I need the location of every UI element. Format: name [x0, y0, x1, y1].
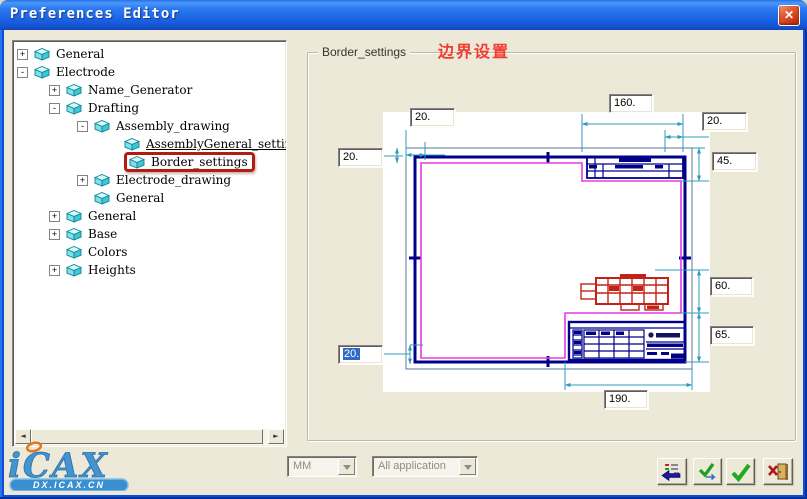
tree-item-label: Border_settings	[151, 155, 248, 169]
icax-watermark-logo: iCAX DX.ICAX.CN	[4, 440, 144, 494]
expander-icon[interactable]: -	[17, 67, 28, 78]
box-node-icon	[94, 173, 110, 187]
tree-item-assembly-drawing[interactable]: - Assembly_drawing	[13, 117, 286, 135]
dim-input-title-block-width[interactable]: 190.	[604, 390, 648, 409]
dim-input-parts-list-offset[interactable]: 60.	[710, 277, 753, 296]
check-with-arrows-icon	[697, 462, 719, 482]
border-preview-drawing	[383, 112, 710, 392]
tree-item-label: Electrode	[56, 65, 115, 79]
tree-item-colors[interactable]: Colors	[13, 243, 286, 261]
box-node-icon	[124, 137, 140, 151]
selected-value: 20.	[343, 348, 360, 360]
expander-icon[interactable]: +	[49, 85, 60, 96]
tree-item-general-electrode[interactable]: + General	[13, 207, 286, 225]
bottom-divider	[4, 491, 803, 495]
scope-combobox[interactable]: All application	[372, 456, 478, 477]
dim-input-left-margin[interactable]: 20.	[338, 148, 383, 167]
units-combobox[interactable]: MM	[287, 456, 357, 477]
tree-item-label: Heights	[88, 263, 136, 277]
green-check-icon	[730, 462, 752, 482]
chevron-down-icon[interactable]	[459, 458, 476, 475]
units-combobox-value: MM	[293, 460, 311, 472]
tree-item-general-drafting[interactable]: General	[13, 189, 286, 207]
red-parts-table	[581, 274, 668, 310]
box-node-icon	[66, 83, 82, 97]
window-title: Preferences Editor	[10, 6, 180, 22]
tree-item-electrode-drawing[interactable]: + Electrode_drawing	[13, 171, 286, 189]
tree-item-label: Name_Generator	[88, 83, 192, 97]
door-with-x-icon	[767, 462, 789, 482]
dim-input-top-table-height[interactable]: 45.	[712, 152, 757, 171]
ok-button[interactable]	[726, 458, 755, 485]
box-node-icon	[66, 227, 82, 241]
scroll-right-button[interactable]: ►	[268, 429, 284, 444]
dim-input-top-right-margin[interactable]: 20.	[702, 112, 747, 131]
tree-item-name-generator[interactable]: + Name_Generator	[13, 81, 286, 99]
box-node-icon	[34, 65, 50, 79]
dim-input-top-left-margin[interactable]: 20.	[410, 108, 455, 127]
box-node-icon	[66, 101, 82, 115]
expander-icon[interactable]: +	[49, 229, 60, 240]
box-node-icon	[94, 119, 110, 133]
scope-combobox-value: All application	[378, 460, 446, 472]
expander-icon[interactable]: +	[49, 211, 60, 222]
tree-item-label: Electrode_drawing	[116, 173, 231, 187]
tree-item-assemblygeneral-settings[interactable]: AssemblyGeneral_settings	[13, 135, 286, 153]
reset-defaults-button[interactable]	[657, 458, 687, 485]
close-button[interactable]: ✕	[778, 5, 800, 26]
tree-item-general-root[interactable]: + General	[13, 45, 286, 63]
tree-item-label: Drafting	[88, 101, 139, 115]
expander-icon[interactable]: -	[49, 103, 60, 114]
border-preview-canvas	[383, 112, 710, 392]
expander-icon[interactable]: +	[49, 265, 60, 276]
expander-icon[interactable]: +	[77, 175, 88, 186]
box-node-icon	[34, 47, 50, 61]
margin-line	[421, 163, 681, 358]
red-annotation-text: 边界设置	[438, 38, 510, 62]
tree-item-label: AssemblyGeneral_settings	[146, 137, 287, 151]
exit-button[interactable]	[763, 458, 793, 485]
box-node-icon	[129, 155, 145, 169]
preferences-editor-window: Preferences Editor ✕ + General - Electro…	[0, 0, 807, 499]
preferences-tree[interactable]: + General - Electrode + Name_Generator -	[12, 40, 287, 447]
apply-button[interactable]	[693, 458, 722, 485]
title-block	[569, 322, 685, 360]
logo-banner-text: DX.ICAX.CN	[33, 480, 105, 490]
dim-input-bottom-margin[interactable]: 20.	[338, 345, 383, 364]
dialog-client-area: + General - Electrode + Name_Generator -	[4, 30, 803, 495]
tree-item-label: General	[116, 191, 164, 205]
groupbox-label: Border_settings	[318, 45, 410, 59]
expander-icon[interactable]: -	[77, 121, 88, 132]
dim-input-top-table-width[interactable]: 160.	[609, 94, 653, 113]
tree-item-label: Colors	[88, 245, 127, 259]
tree-item-electrode[interactable]: - Electrode	[13, 63, 286, 81]
chevron-down-icon[interactable]	[338, 458, 355, 475]
top-right-table	[587, 157, 683, 178]
expander-icon[interactable]: +	[17, 49, 28, 60]
red-highlight-box: Border_settings	[124, 152, 255, 172]
tree-item-label: General	[88, 209, 136, 223]
list-with-back-arrow-icon	[661, 462, 683, 482]
tree-item-base[interactable]: + Base	[13, 225, 286, 243]
box-node-icon	[94, 191, 110, 205]
tree-item-label: General	[56, 47, 104, 61]
box-node-icon	[66, 209, 82, 223]
tree-item-border-settings[interactable]: Border_settings	[13, 153, 286, 171]
box-node-icon	[66, 245, 82, 259]
tree-item-label: Assembly_drawing	[116, 119, 230, 133]
dim-input-title-block-height[interactable]: 65.	[710, 326, 754, 345]
tree-item-heights[interactable]: + Heights	[13, 261, 286, 279]
box-node-icon	[66, 263, 82, 277]
titlebar[interactable]: Preferences Editor ✕	[0, 0, 807, 30]
tree-item-label: Base	[88, 227, 117, 241]
tree-item-drafting[interactable]: - Drafting	[13, 99, 286, 117]
